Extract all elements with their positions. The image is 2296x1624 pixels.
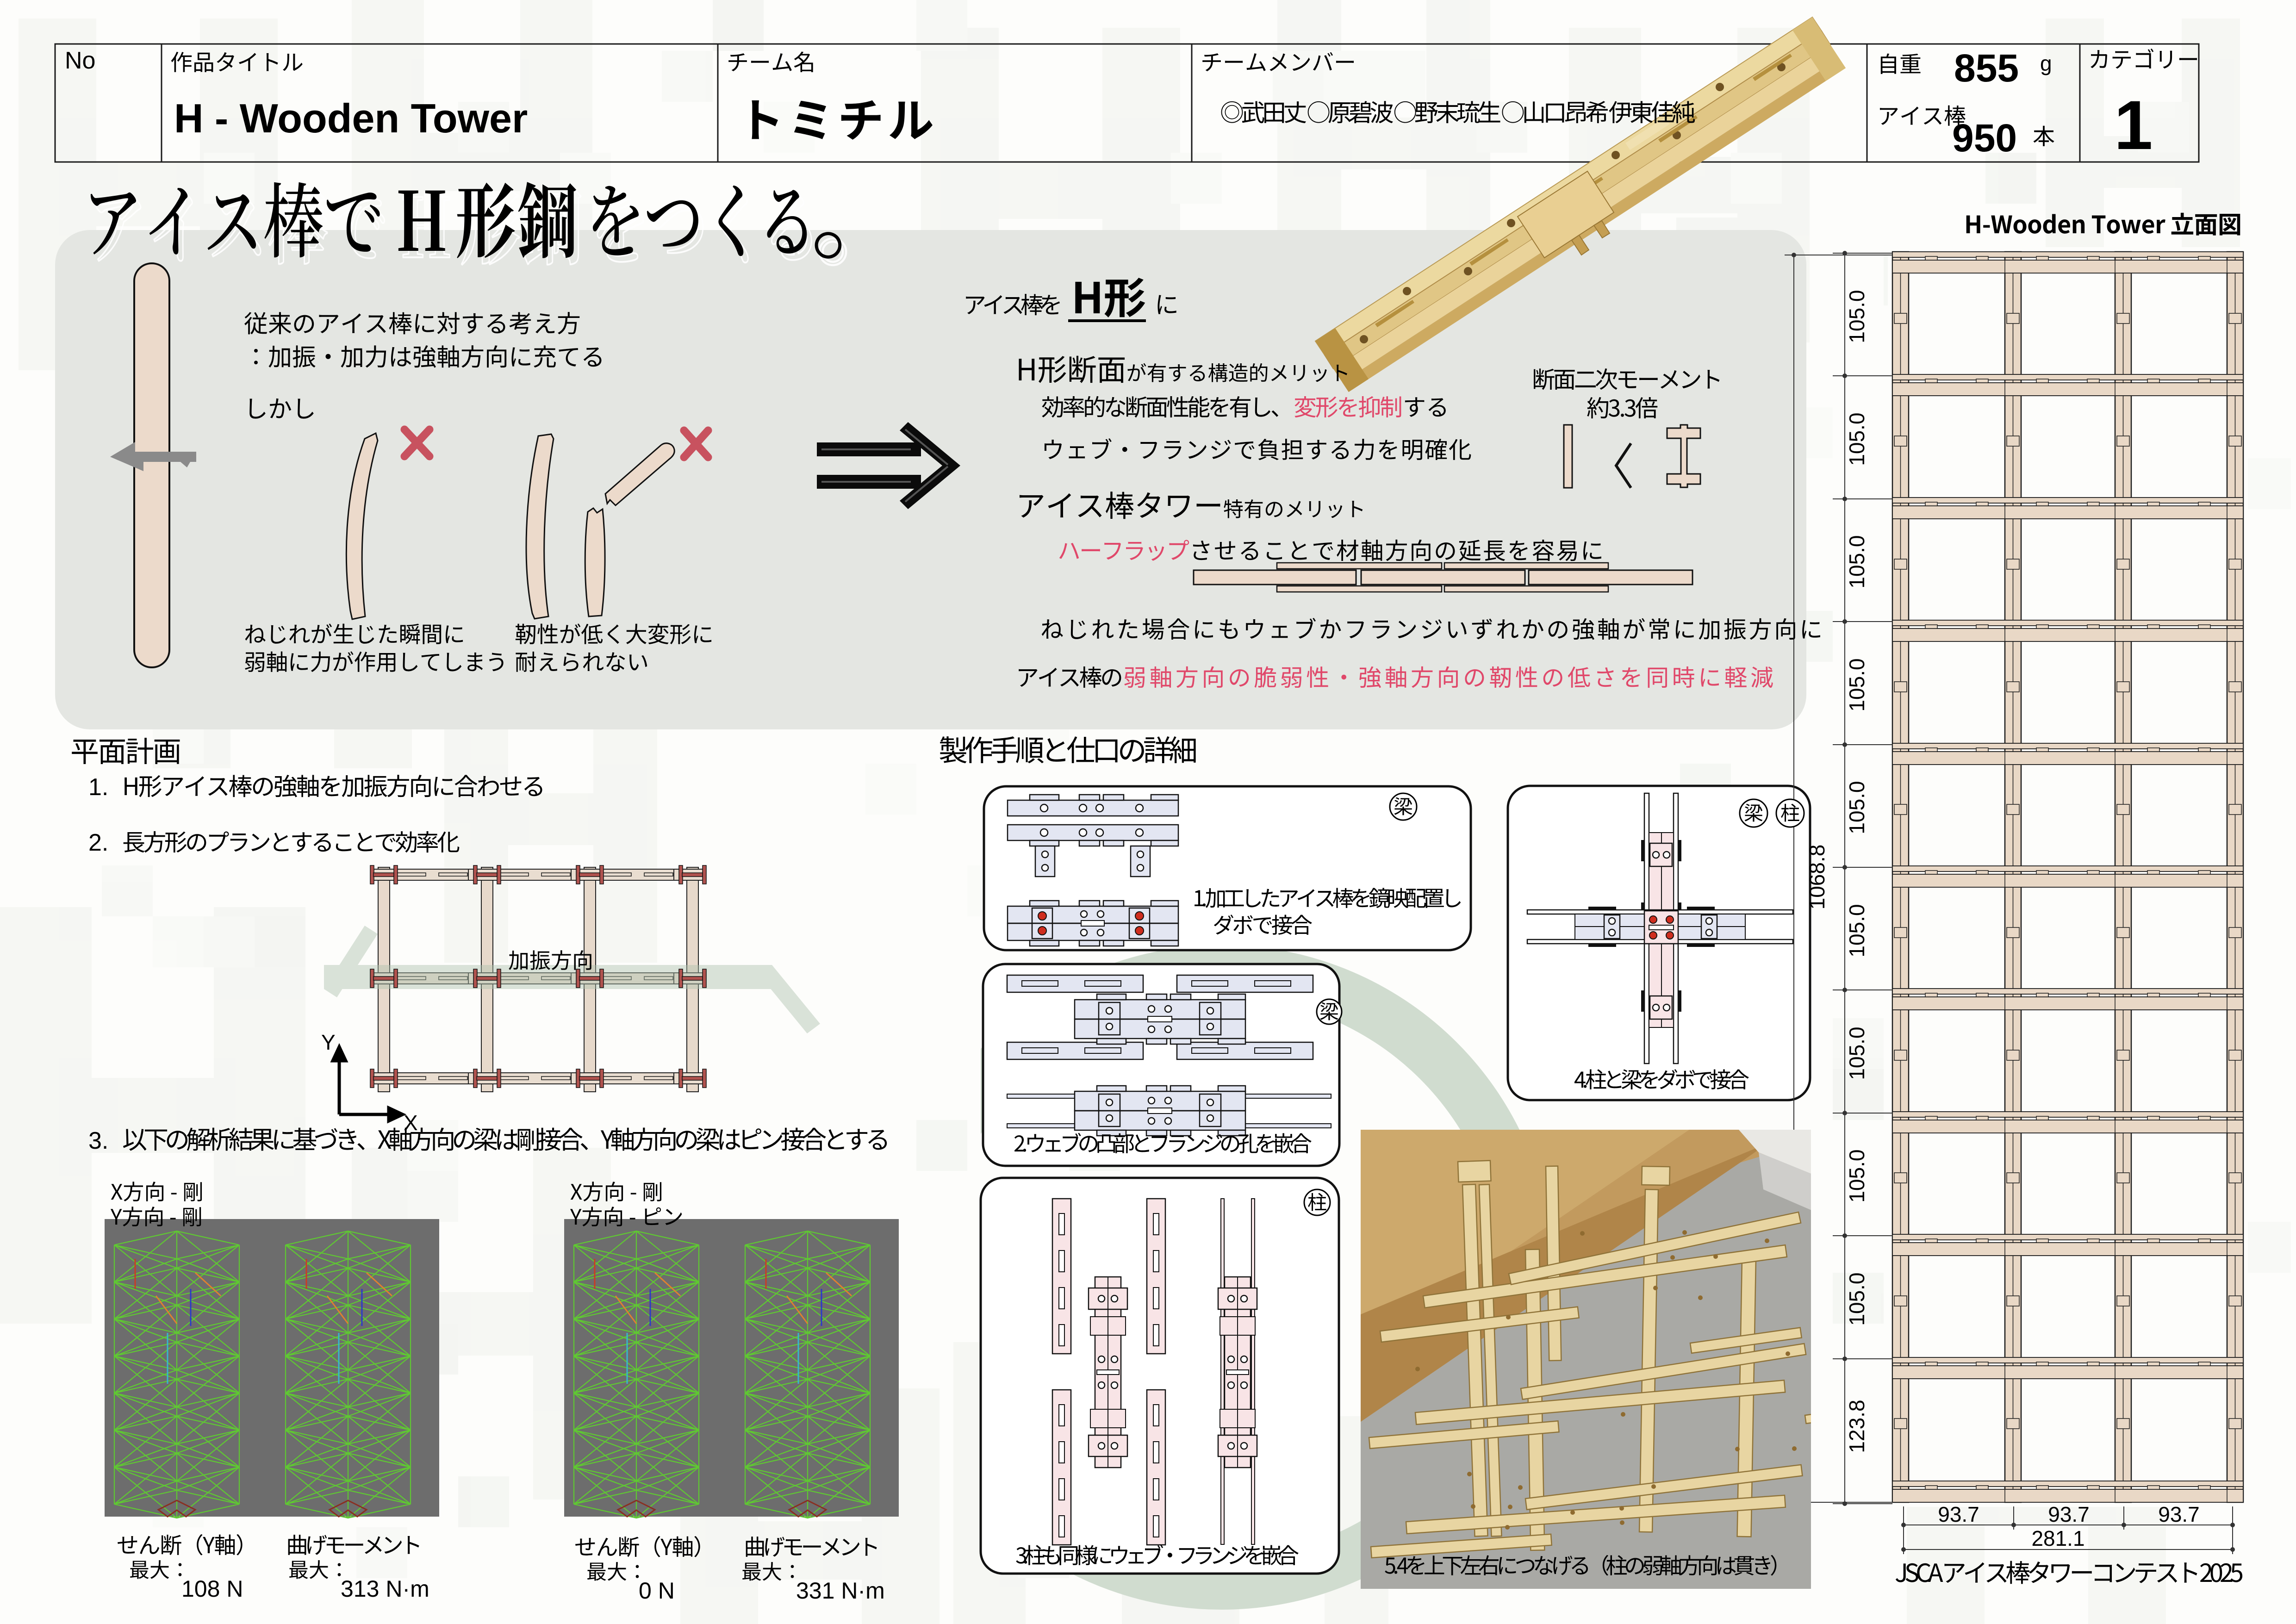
- svg-text:281.1: 281.1: [2031, 1526, 2084, 1550]
- svg-text:105.0: 105.0: [1845, 781, 1869, 834]
- svg-text:X: X: [404, 1111, 418, 1135]
- svg-text:950: 950: [1952, 116, 2017, 160]
- svg-text:2.: 2.: [88, 829, 108, 856]
- svg-text:105.0: 105.0: [1845, 1272, 1869, 1325]
- svg-text:1068.8: 1068.8: [1805, 845, 1829, 910]
- svg-text:93.7: 93.7: [1938, 1502, 1979, 1526]
- svg-text:93.7: 93.7: [2158, 1502, 2200, 1526]
- svg-text:331 N·m: 331 N·m: [796, 1578, 885, 1604]
- svg-text:g: g: [2040, 51, 2052, 75]
- svg-text:93.7: 93.7: [2048, 1502, 2090, 1526]
- svg-text:H - Wooden Tower: H - Wooden Tower: [174, 95, 528, 141]
- svg-text:105.0: 105.0: [1845, 412, 1869, 466]
- svg-text:313 N·m: 313 N·m: [341, 1576, 429, 1602]
- svg-text:1.: 1.: [88, 774, 108, 801]
- svg-text:105.0: 105.0: [1845, 535, 1869, 588]
- svg-text:Y: Y: [321, 1030, 336, 1054]
- svg-text:0 N: 0 N: [639, 1578, 675, 1604]
- svg-text:No: No: [65, 47, 95, 74]
- svg-text:108 N: 108 N: [181, 1576, 243, 1602]
- svg-text:105.0: 105.0: [1845, 1149, 1869, 1202]
- svg-text:105.0: 105.0: [1845, 1027, 1869, 1080]
- svg-text:1: 1: [2114, 86, 2153, 164]
- svg-text:3.: 3.: [88, 1127, 108, 1154]
- svg-text:105.0: 105.0: [1845, 290, 1869, 343]
- svg-text:105.0: 105.0: [1845, 904, 1869, 957]
- svg-text:855: 855: [1954, 46, 2019, 90]
- svg-text:105.0: 105.0: [1845, 658, 1869, 711]
- svg-text:123.8: 123.8: [1845, 1400, 1869, 1453]
